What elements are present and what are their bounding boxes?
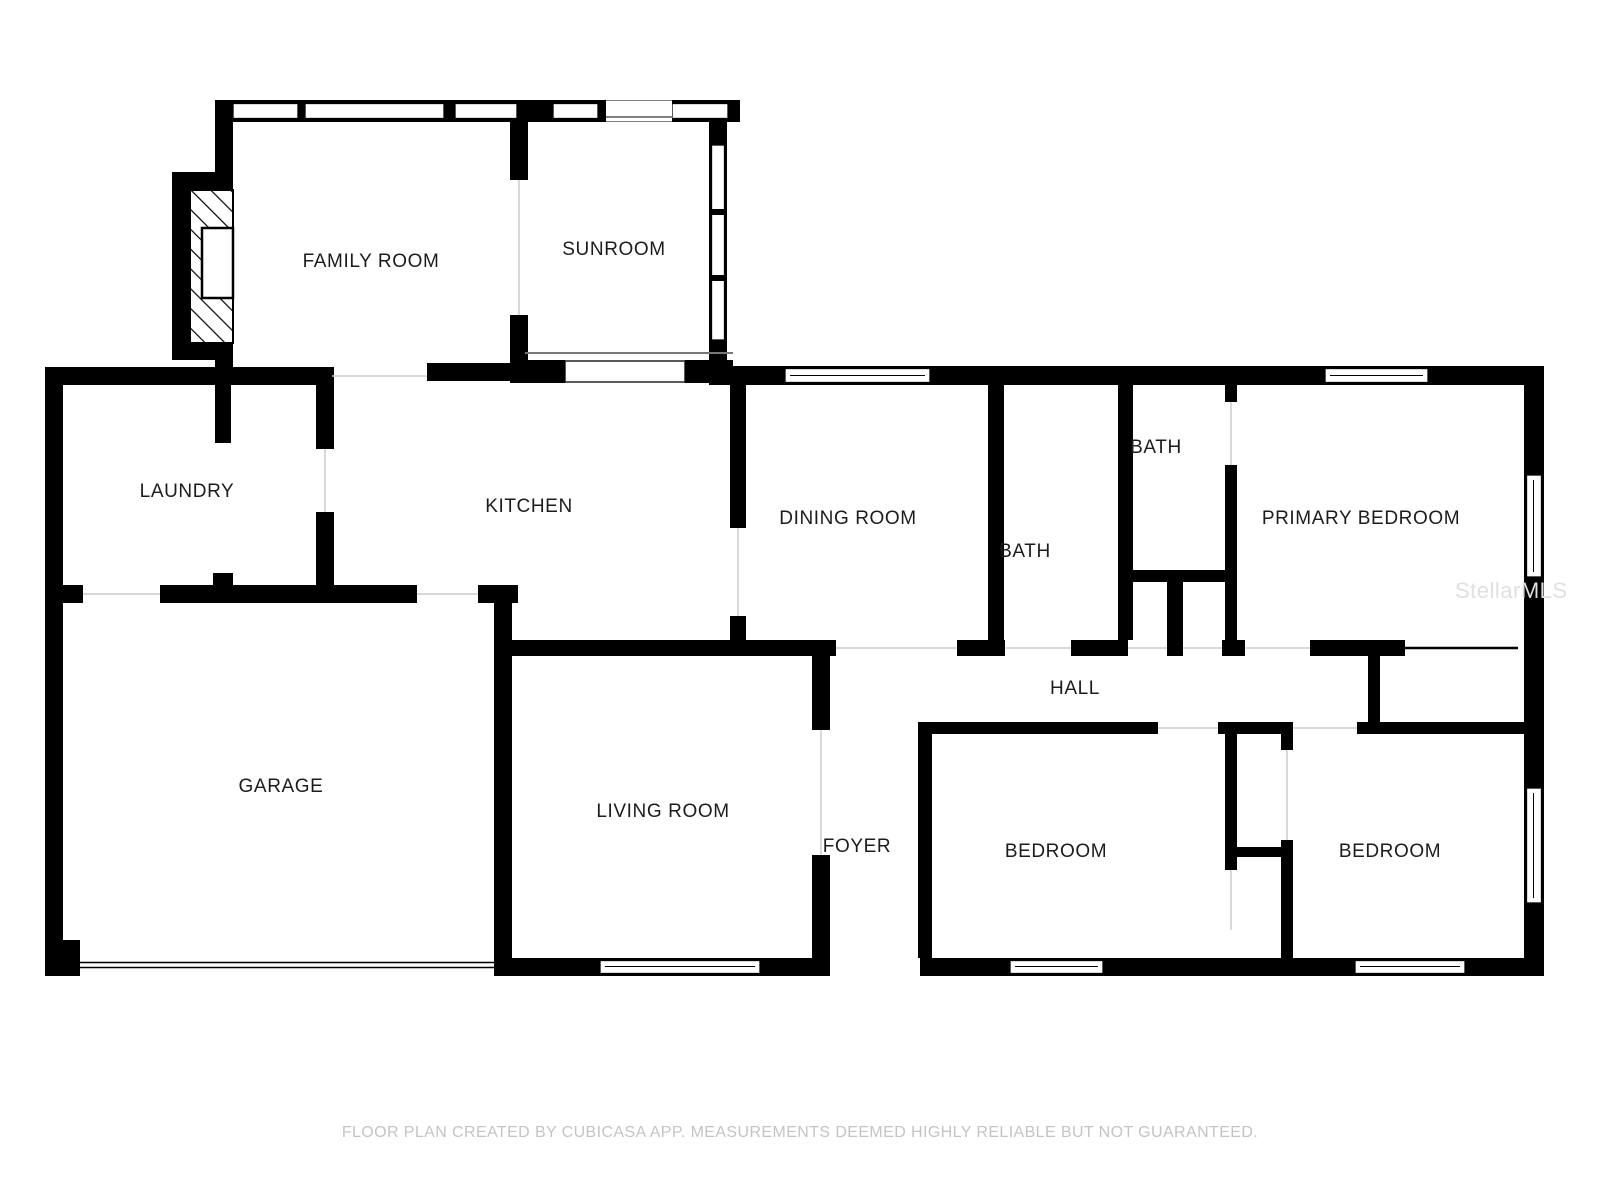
room-label-garage: GARAGE [239, 776, 324, 797]
fireplace [190, 190, 233, 343]
window [672, 104, 728, 119]
window [305, 104, 444, 119]
room-label-primary-bedroom: PRIMARY BEDROOM [1262, 508, 1460, 529]
window [712, 145, 725, 340]
room-labels: FAMILY ROOM SUNROOM LAUNDRY KITCHEN DINI… [140, 239, 1461, 862]
sliding-door [565, 361, 685, 382]
room-label-family-room: FAMILY ROOM [303, 251, 440, 272]
room-label-bath-1: BATH [999, 541, 1051, 562]
window-mullions [605, 117, 1534, 967]
window [455, 104, 517, 119]
room-label-dining-room: DINING ROOM [779, 508, 917, 529]
room-label-foyer: FOYER [823, 836, 891, 857]
room-label-sunroom: SUNROOM [562, 239, 665, 260]
floor-plan-drawing: FAMILY ROOM SUNROOM LAUNDRY KITCHEN DINI… [0, 0, 1600, 1200]
screen-opening [606, 101, 672, 122]
window [553, 104, 598, 119]
room-label-bedroom-2: BEDROOM [1339, 841, 1441, 862]
room-label-kitchen: KITCHEN [485, 496, 573, 517]
fireplace-firebox [202, 228, 233, 298]
front-door-opening [830, 958, 920, 976]
room-label-bath-2: BATH [1130, 437, 1182, 458]
footer-disclaimer: FLOOR PLAN CREATED BY CUBICASA APP. MEAS… [0, 1124, 1600, 1142]
room-label-hall: HALL [1050, 678, 1100, 699]
walls [45, 100, 1544, 976]
room-label-living-room: LIVING ROOM [596, 801, 729, 822]
stellar-mls-watermark: StellarMLS [1455, 578, 1600, 604]
sliding-door-track [525, 353, 1518, 648]
window [233, 104, 298, 119]
room-label-laundry: LAUNDRY [140, 481, 235, 502]
floor-plan-canvas: FAMILY ROOM SUNROOM LAUNDRY KITCHEN DINI… [0, 0, 1600, 1200]
room-label-bedroom-1: BEDROOM [1005, 841, 1107, 862]
